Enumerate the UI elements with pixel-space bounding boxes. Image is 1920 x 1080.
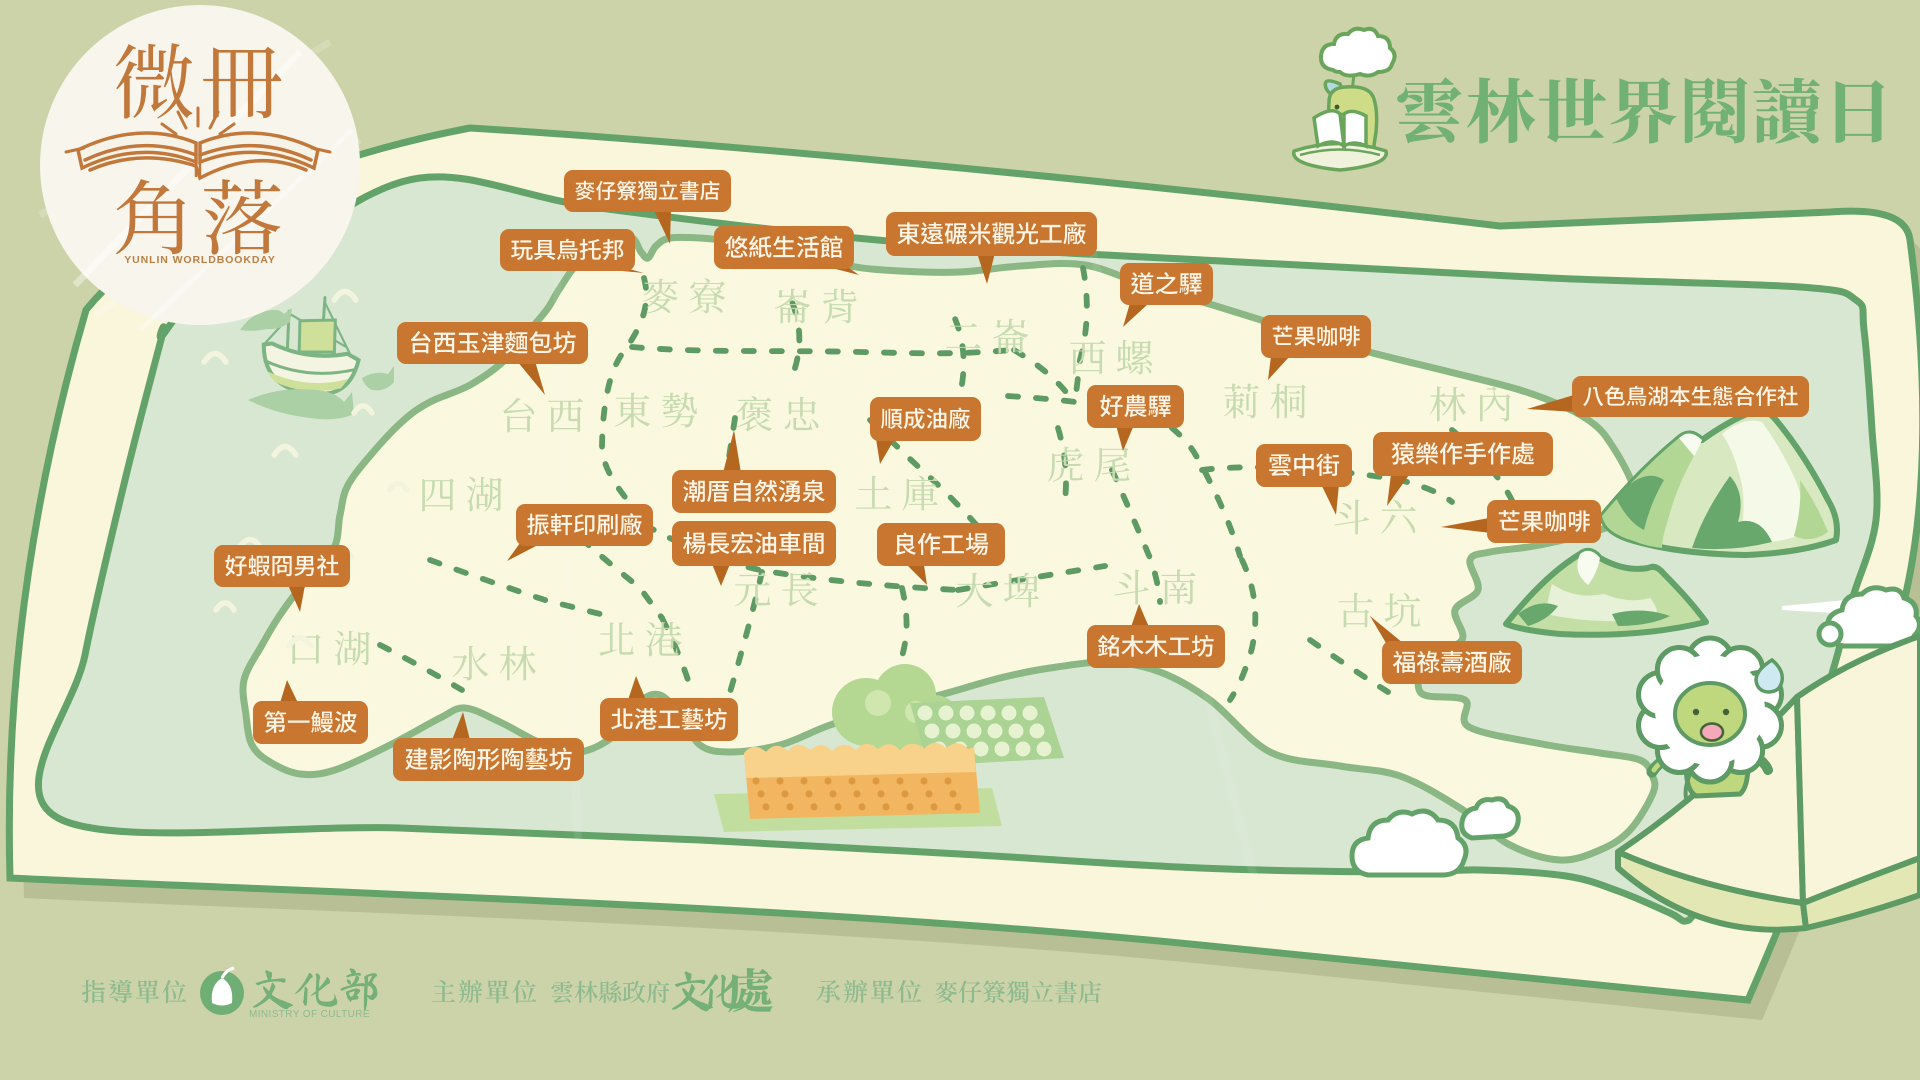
svg-text:YUNLIN WORLDBOOKDAY: YUNLIN WORLDBOOKDAY <box>124 254 275 266</box>
svg-text:MINISTRY OF CULTURE: MINISTRY OF CULTURE <box>249 1009 370 1020</box>
